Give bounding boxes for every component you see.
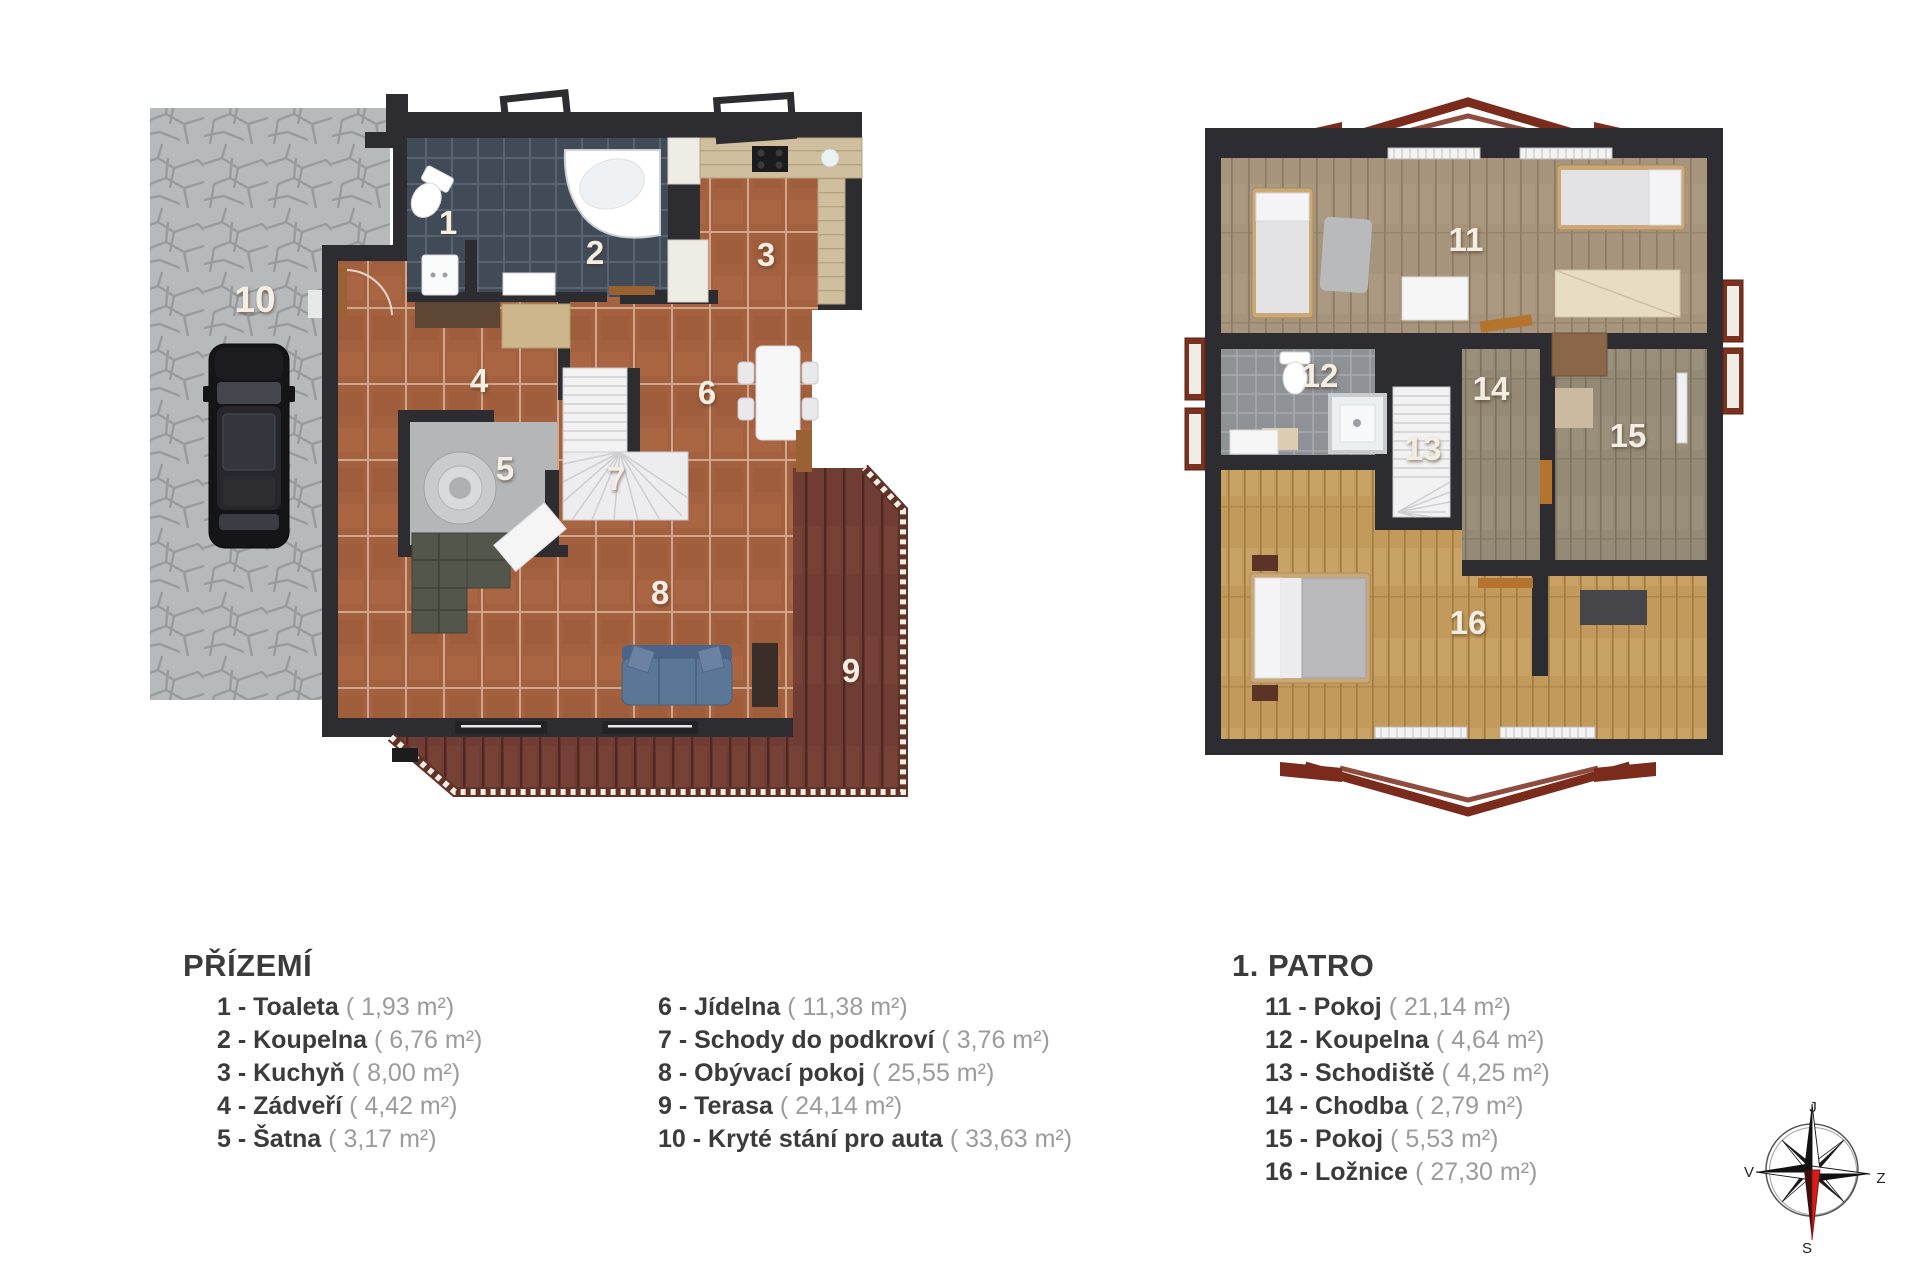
room-label-11: 11 [1449, 221, 1484, 258]
legend-item: 11 - Pokoj( 21,14 m²) [1265, 991, 1511, 1024]
legend-item: 15 - Pokoj( 5,53 m²) [1265, 1123, 1498, 1156]
room-label-10: 10 [234, 279, 275, 320]
tv-cabinet [752, 643, 778, 707]
chest [1555, 270, 1680, 317]
sofa [622, 645, 732, 705]
roof-truss-bottom [1280, 762, 1656, 812]
ground-floor-title: PŘÍZEMÍ [183, 948, 312, 984]
legend-item: 9 - Terasa( 24,14 m²) [658, 1090, 902, 1123]
room-label-2: 2 [586, 234, 604, 271]
round-fixture [424, 452, 496, 524]
legend-item: 1 - Toaleta( 1,93 m²) [217, 991, 454, 1024]
room-label-13: 13 [1405, 430, 1442, 467]
compass-rose-icon: J V Z S [1740, 1092, 1890, 1257]
kitchen-sink [821, 149, 839, 167]
car [203, 344, 295, 548]
bench [1580, 590, 1647, 625]
desk [1402, 277, 1468, 320]
legend-item: 8 - Obývací pokoj( 25,55 m²) [658, 1057, 994, 1090]
first-floor-title: 1. PATRO [1232, 948, 1374, 984]
compass-label-left: V [1744, 1164, 1754, 1181]
legend-item: 2 - Koupelna( 6,76 m²) [217, 1024, 482, 1057]
rug-small [1555, 388, 1593, 428]
washbasin-unit [422, 255, 458, 295]
legend-item: 14 - Chodba( 2,79 m²) [1265, 1090, 1523, 1123]
legend-item: 10 - Kryté stání pro auta( 33,63 m²) [658, 1123, 1072, 1156]
bed-single-left [1252, 188, 1313, 318]
bathroom-door [609, 286, 655, 295]
floorplan-page: 1 2 3 4 5 6 7 8 9 10 [0, 0, 1920, 1280]
room-label-8: 8 [651, 574, 669, 611]
legend-item: 12 - Koupelna( 4,64 m²) [1265, 1024, 1544, 1057]
room-label-6: 6 [698, 374, 716, 411]
room-label-4: 4 [470, 362, 489, 399]
legend-item: 5 - Šatna( 3,17 m²) [217, 1123, 437, 1156]
compass-label-top: J [1809, 1099, 1817, 1116]
compass-cardinals [1756, 1104, 1870, 1240]
entrance-step [308, 290, 322, 318]
interior-wall-stub [1532, 576, 1548, 676]
room-label-9: 9 [842, 652, 860, 689]
bed-single-right [1557, 165, 1685, 230]
bed-double [1250, 555, 1370, 701]
room-label-16: 16 [1450, 604, 1487, 641]
rug [1319, 216, 1372, 293]
room-label-3: 3 [757, 236, 775, 273]
room-label-1: 1 [439, 204, 457, 241]
compass-label-bottom: S [1802, 1240, 1812, 1257]
legend-item: 7 - Schody do podkroví( 3,76 m²) [658, 1024, 1050, 1057]
legend-item: 16 - Ložnice( 27,30 m²) [1265, 1156, 1537, 1189]
hall-bench [415, 302, 500, 328]
room-label-15: 15 [1610, 417, 1647, 454]
room-label-14: 14 [1473, 370, 1510, 407]
legend-item: 13 - Schodiště( 4,25 m²) [1265, 1057, 1550, 1090]
cooktop [752, 146, 788, 172]
wardrobe [1552, 333, 1607, 376]
ground-floor-plan: 1 2 3 4 5 6 7 8 9 10 [140, 80, 920, 820]
legend-item: 6 - Jídelna( 11,38 m²) [658, 991, 908, 1024]
compass-label-right: Z [1876, 1170, 1885, 1187]
hall-table [502, 304, 570, 348]
room-label-5: 5 [496, 450, 514, 487]
first-floor-plan: 11 12 13 14 15 16 [1180, 90, 1780, 820]
washbasin-upper [1230, 430, 1278, 454]
room-label-12: 12 [1302, 357, 1339, 394]
wall-corner-post [386, 94, 408, 138]
radiator-right [1677, 373, 1687, 443]
terrace-door [796, 430, 812, 472]
legend-item: 4 - Zádveří( 4,42 m²) [217, 1090, 457, 1123]
shower [1330, 395, 1385, 452]
legend-item: 3 - Kuchyň( 8,00 m²) [217, 1057, 460, 1090]
room-label-7: 7 [607, 460, 625, 497]
vanity [503, 273, 555, 295]
